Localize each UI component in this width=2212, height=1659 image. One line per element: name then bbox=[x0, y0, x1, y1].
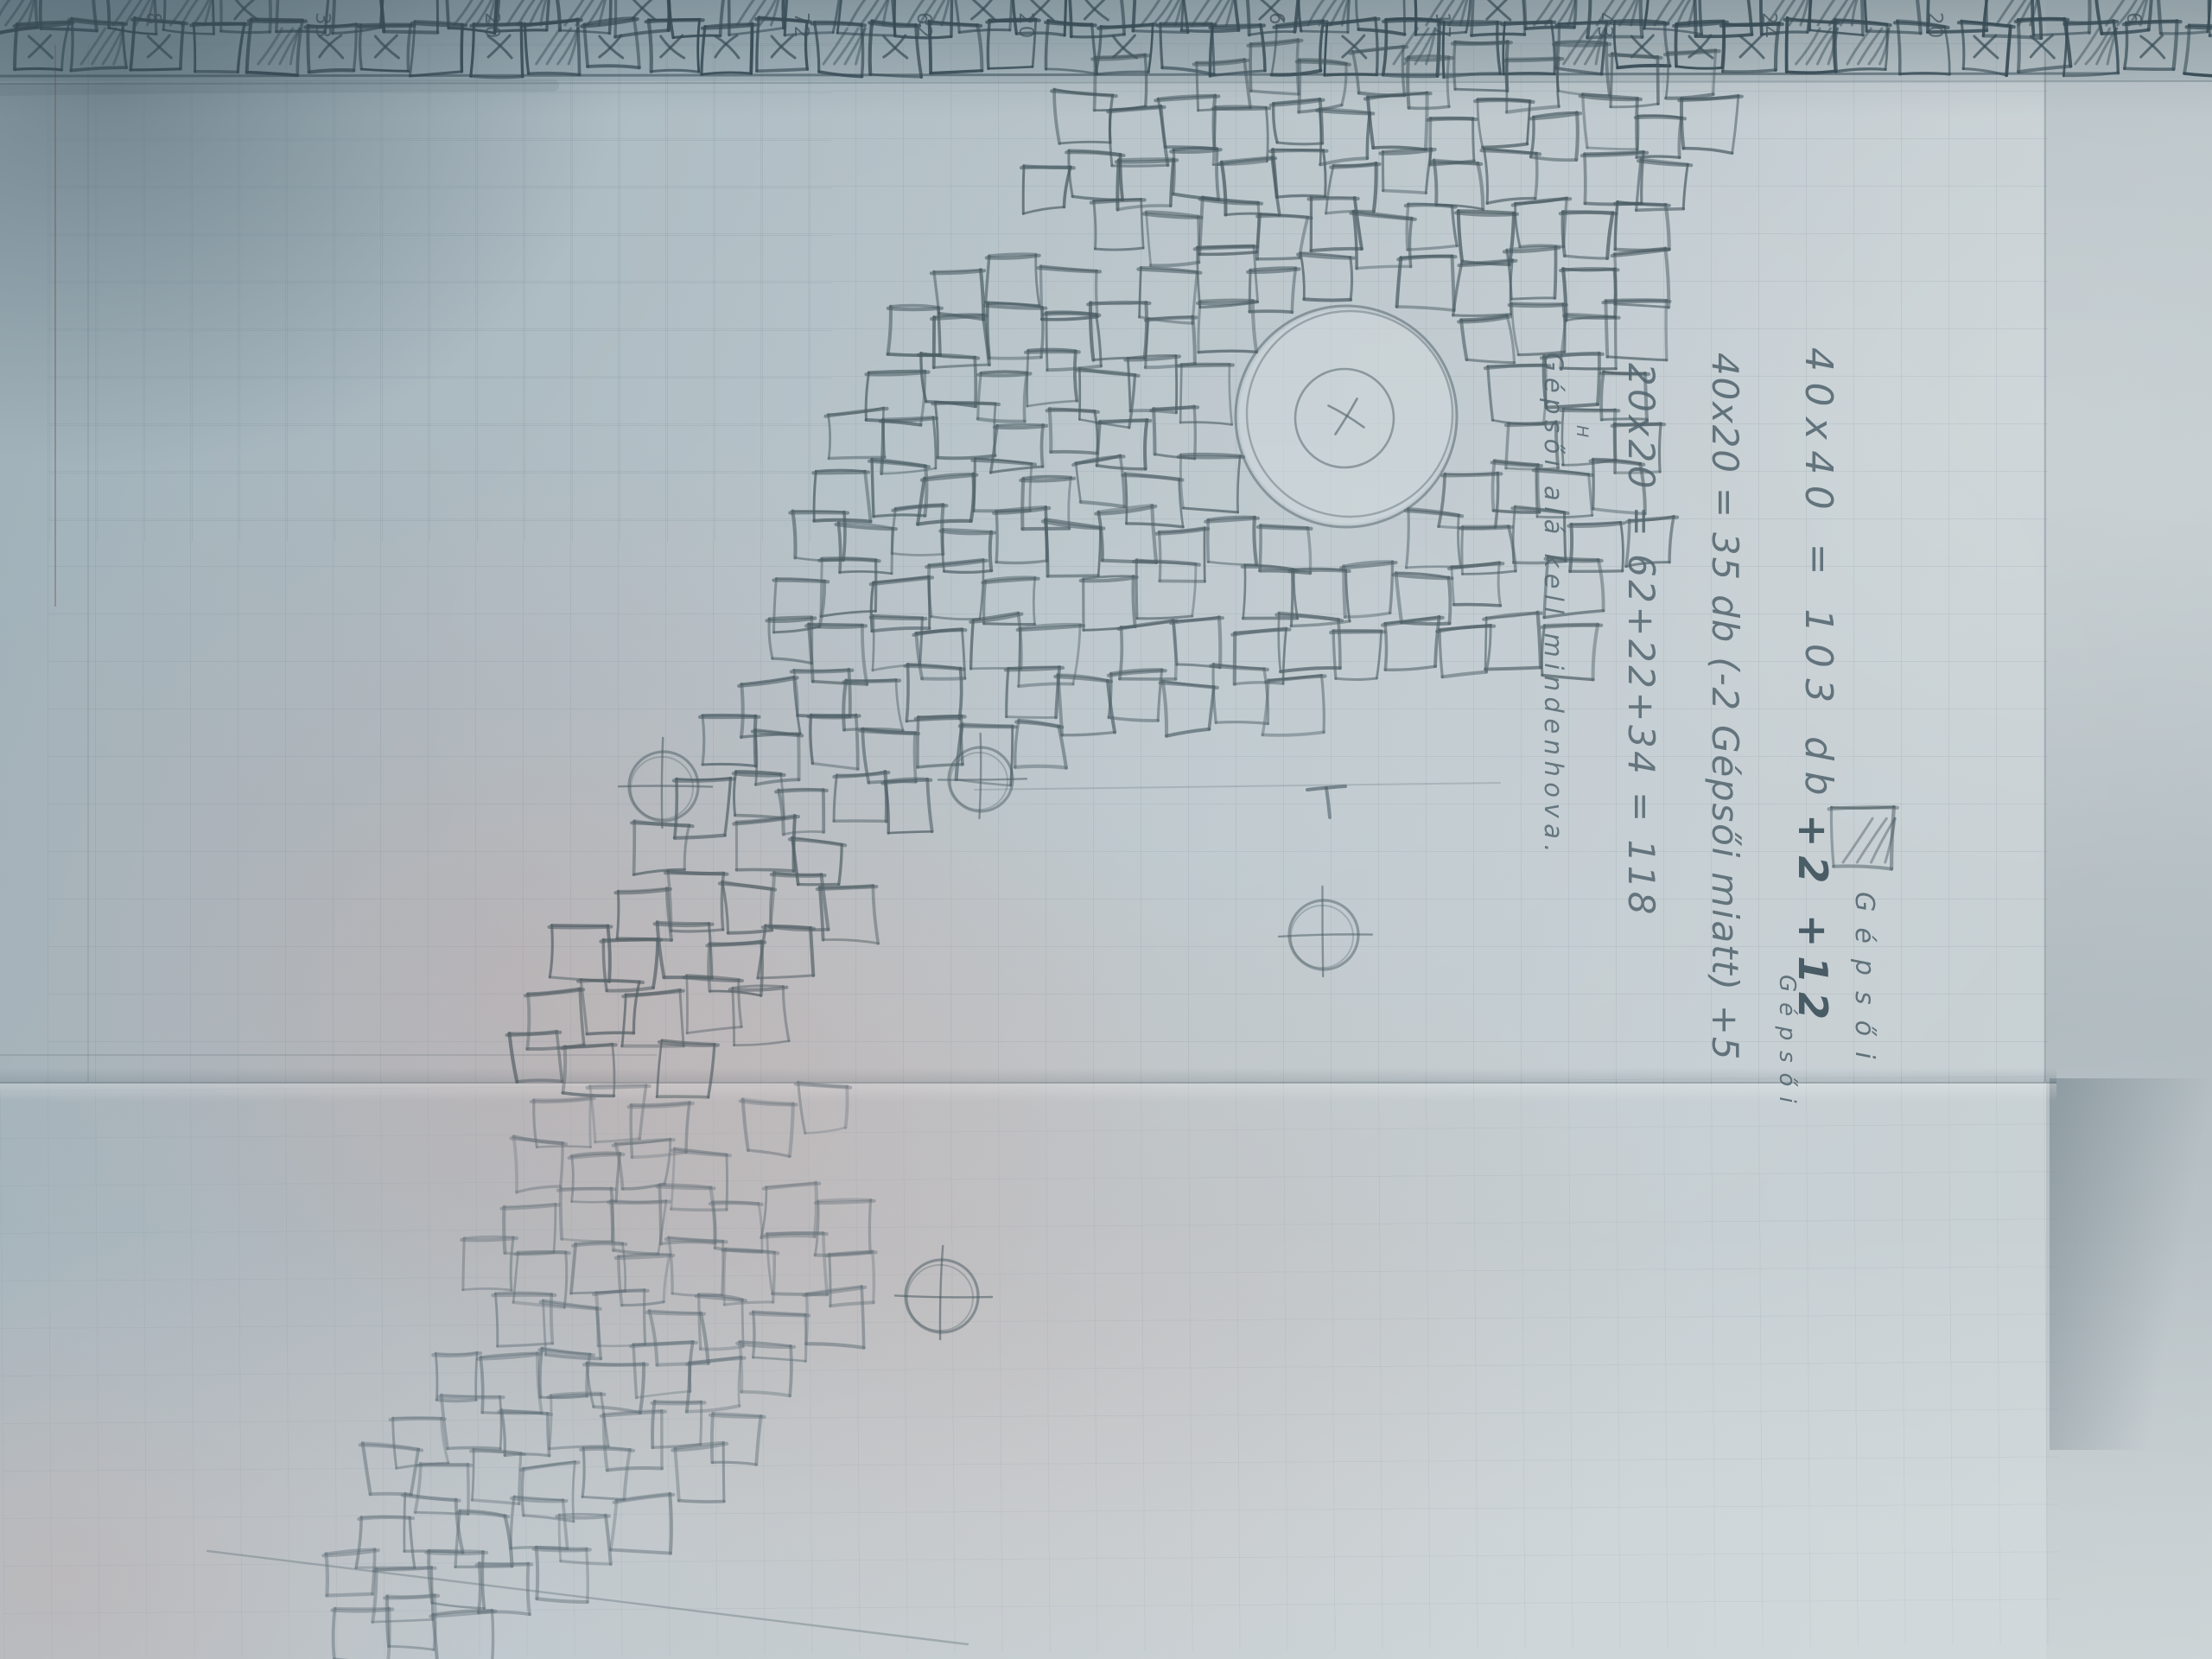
misc-pencil-lines bbox=[207, 783, 1500, 1644]
pencil-sketch-svg: 833207262206174324206 40x40 = 103 db +2 … bbox=[0, 0, 2212, 1659]
strip-count-label: 6 bbox=[2122, 12, 2145, 26]
note-20x20-total: 20x20 = 62+22+34 = 118 bbox=[1620, 363, 1662, 916]
round-well-feature bbox=[1236, 306, 1457, 527]
crosshair-marker bbox=[895, 1246, 992, 1339]
paving-tile-band bbox=[323, 40, 1741, 1659]
strip-count-label: 24 bbox=[1758, 12, 1780, 39]
crosshair-marker bbox=[619, 738, 712, 828]
t-mark bbox=[1307, 786, 1345, 817]
strip-count-label: 33 bbox=[311, 12, 334, 39]
strip-count-label: 20 bbox=[480, 12, 503, 39]
strip-count-label: 72 bbox=[790, 12, 812, 39]
note-40x40-total: 40x40 = 103 db bbox=[1796, 347, 1840, 797]
legend-label: Gépsői bbox=[1849, 892, 1879, 1060]
crosshair-marker bbox=[1279, 887, 1372, 976]
note-40x20-total: 40x20 = 35 db (-2 Gépsői miatt) +5 bbox=[1704, 353, 1746, 1061]
photographed-paving-plan: 833207262206174324206 40x40 = 103 db +2 … bbox=[0, 0, 2212, 1659]
border-strip-detail: 833207262206174324206 bbox=[0, 0, 2212, 90]
strip-count-label: 6 bbox=[1265, 12, 1287, 26]
site-note: Gépsői alá kell mindenhova. bbox=[1539, 353, 1568, 854]
site-note-superscript: H bbox=[1573, 425, 1592, 439]
strip-count-label: 17 bbox=[1431, 12, 1453, 39]
strip-count-label: 62 bbox=[912, 12, 935, 39]
legend-square bbox=[1829, 807, 1897, 869]
strip-count-label: 20 bbox=[1014, 12, 1037, 39]
strip-count-label: 43 bbox=[1593, 12, 1616, 39]
strip-count-label: 20 bbox=[1923, 12, 1946, 39]
strip-count-label: 8 bbox=[142, 12, 164, 26]
